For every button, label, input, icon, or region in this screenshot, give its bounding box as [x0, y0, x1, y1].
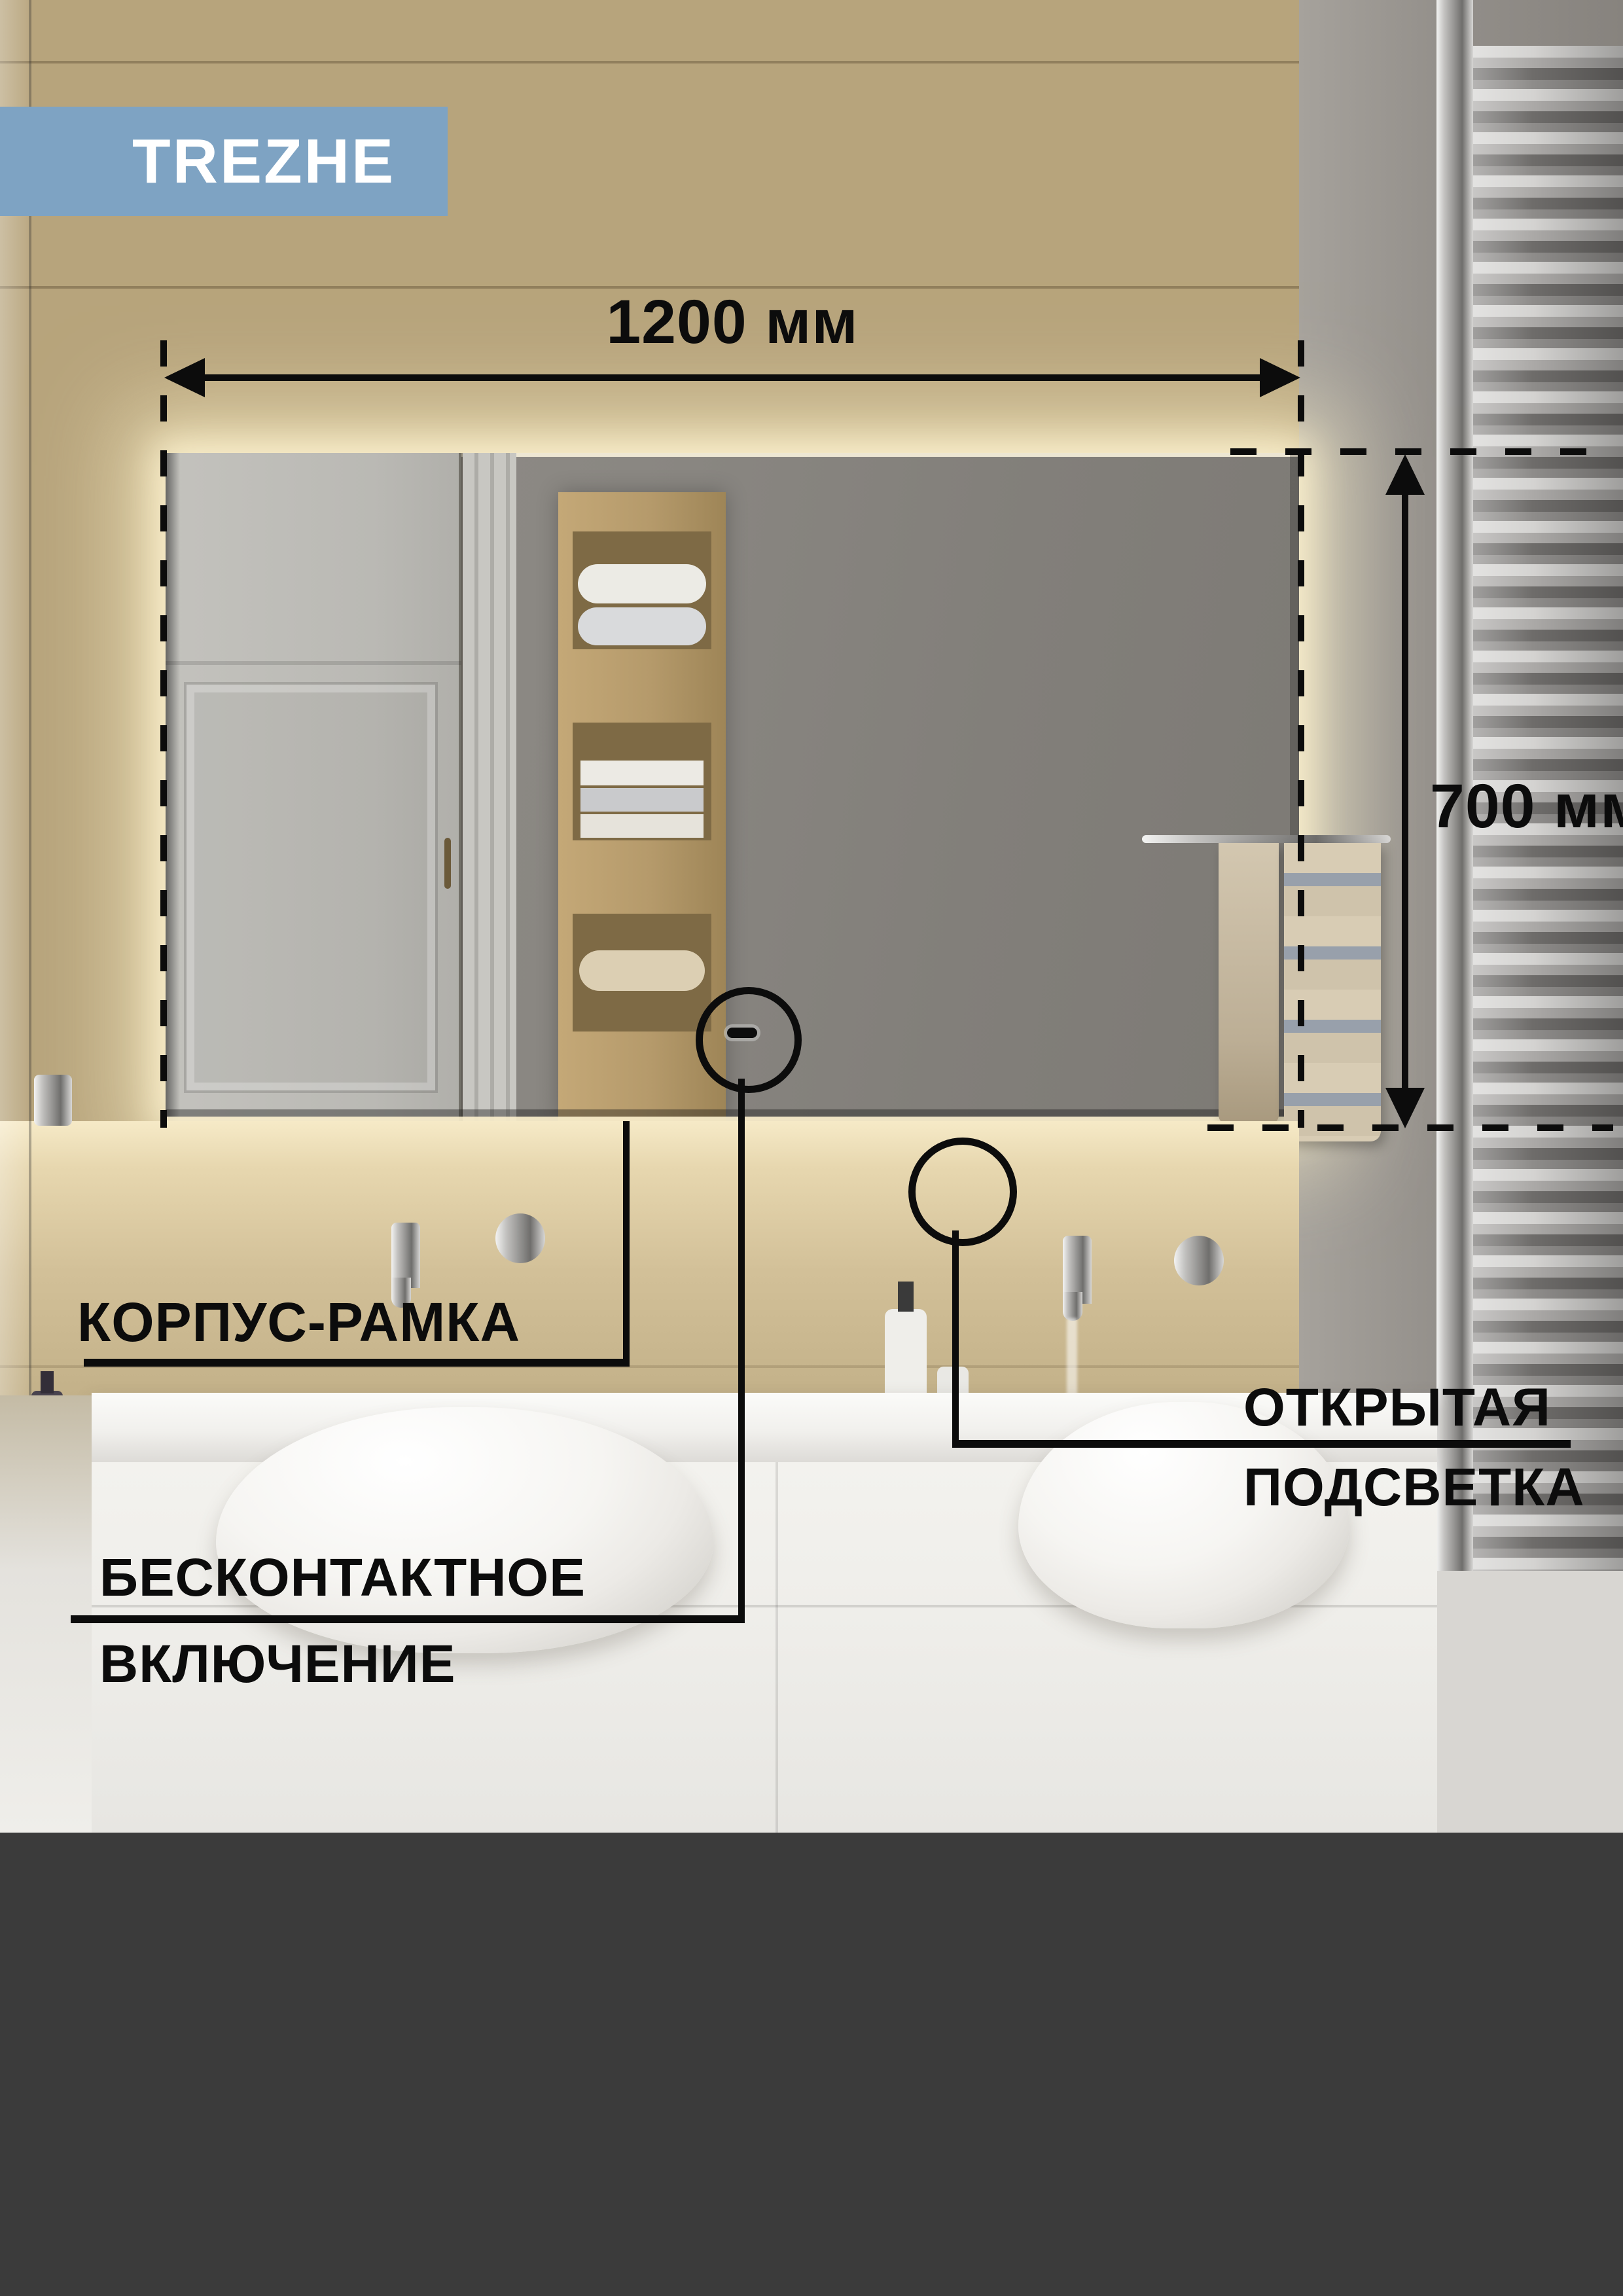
brand-badge: TREZHE	[0, 107, 448, 216]
sensor-callout-line-v	[738, 1079, 745, 1621]
product-card: TREZHE 1200 мм 700 мм КОРПУС-РАМКА БЕСКО…	[0, 0, 1623, 2296]
door-handle	[444, 838, 451, 889]
halo-callout-line-v	[952, 1230, 959, 1446]
folded-towel	[580, 788, 704, 812]
dashed-extent-left	[160, 340, 167, 1128]
width-dimension-line	[196, 374, 1268, 381]
drawer-seam-v	[776, 1462, 778, 1833]
arrow-down-icon	[1385, 1088, 1425, 1128]
mirror-frame-left	[166, 453, 180, 1121]
halo-callout-label-2: ПОДСВЕТКА	[1243, 1457, 1585, 1518]
frame-callout-line-v	[623, 1121, 630, 1365]
halo-callout-line-h	[952, 1440, 1571, 1448]
sensor-callout-line-h	[71, 1615, 745, 1623]
height-dimension-line	[1402, 487, 1408, 1096]
sensor-callout-label-1: БЕСКОНТАКТНОЕ	[99, 1547, 586, 1609]
halo-callout-label-1: ОТКРЫТАЯ	[1243, 1377, 1551, 1439]
frame-callout-label: КОРПУС-РАМКА	[77, 1291, 520, 1354]
rolled-towel	[579, 950, 705, 991]
floor-right	[1436, 1571, 1623, 1833]
dashed-extent-right	[1298, 340, 1304, 1128]
rolled-towel	[578, 564, 706, 603]
glass-hinge	[34, 1075, 72, 1126]
hanging-towel	[1219, 843, 1279, 1124]
door-molding	[166, 661, 461, 665]
frame-callout-line-h	[84, 1359, 630, 1367]
left-faucet-knob	[495, 1213, 545, 1263]
rolled-towel	[578, 607, 706, 645]
brand-name: TREZHE	[132, 126, 395, 198]
door-casing	[463, 453, 516, 1121]
tile-seam	[0, 61, 1299, 63]
sensor-callout-label-2: ВКЛЮЧЕНИЕ	[99, 1634, 455, 1695]
door-panel	[184, 682, 438, 1093]
features-footer: Бесконтактное включение Корпус-рамка Отк…	[0, 1833, 1623, 2296]
soap-pump	[41, 1371, 54, 1393]
height-dimension-label: 700 мм	[1430, 771, 1623, 842]
floor-left	[0, 1395, 92, 1833]
mirror-frame-bottom	[166, 1109, 1299, 1121]
folded-towel	[580, 814, 704, 838]
folded-towel	[580, 761, 704, 785]
width-dimension-label: 1200 мм	[166, 287, 1299, 358]
right-faucet-tip	[1063, 1292, 1082, 1321]
arrow-right-icon	[1260, 358, 1300, 397]
arrow-up-icon	[1385, 454, 1425, 495]
arrow-left-icon	[164, 358, 205, 397]
right-faucet-knob	[1174, 1236, 1224, 1285]
backsplash	[0, 1121, 1299, 1395]
sensor-callout-ring	[696, 987, 802, 1093]
towel-bar	[1142, 835, 1391, 843]
pump-bottle-top	[898, 1282, 914, 1312]
halo-callout-ring	[908, 1138, 1017, 1246]
